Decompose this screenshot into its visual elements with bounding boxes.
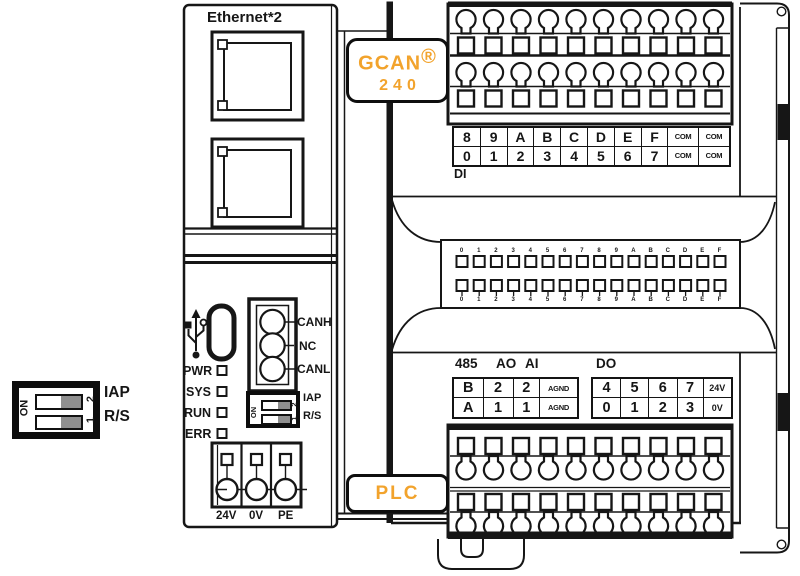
dip-legend-switch-2 xyxy=(35,394,83,410)
legend-rs-label: R/S xyxy=(104,408,130,426)
di-terminal-block xyxy=(448,2,732,125)
err-led xyxy=(218,429,227,438)
dip-switch: ON 2 1 xyxy=(246,391,300,428)
dip-legend-switch-1 xyxy=(35,415,83,431)
gcan-logo: GCAN® xyxy=(358,47,437,74)
di-label-table: 89ABCDEFCOMCOM 01234567COMCOM xyxy=(452,126,731,167)
nc-label: NC xyxy=(299,339,316,353)
din-tab-upper xyxy=(778,104,789,140)
24v-label: 24V xyxy=(216,510,236,522)
usb-c-port xyxy=(209,306,234,359)
sys-led xyxy=(218,387,227,396)
dip-legend-pos2-label: 2 xyxy=(85,396,97,402)
canl-label: CANL xyxy=(297,362,330,376)
iap-label: IAP xyxy=(303,392,321,404)
dip-pos1-label: 1 xyxy=(289,416,298,420)
power-terminal xyxy=(212,443,307,507)
dip-on-label: ON xyxy=(249,406,258,417)
bus-pin-labels-bottom: 0123456789ABCDEF xyxy=(453,297,729,304)
pwr-led xyxy=(218,366,227,375)
din-tab-lower xyxy=(778,393,789,431)
side-panel xyxy=(740,4,789,553)
ai-header: AI xyxy=(525,356,539,371)
err-led-label: ERR xyxy=(185,427,211,441)
dip-legend-on-label: ON xyxy=(18,400,30,417)
run-led xyxy=(218,408,227,417)
canh-label: CANH xyxy=(297,315,332,329)
gcan-model: 240 xyxy=(374,78,421,94)
dip-switch-1 xyxy=(261,414,292,425)
can-terminal xyxy=(249,299,297,391)
ethernet-label: Ethernet*2 xyxy=(207,9,282,26)
gcan-240-wiring-diagram: Ethernet*2 PWR SYS RUN ERR CANH NC CANL … xyxy=(0,0,800,576)
485-header: 485 xyxy=(455,356,478,371)
pwr-led-label: PWR xyxy=(183,364,212,378)
dip-legend-pos1-label: 1 xyxy=(85,416,97,422)
dip-switch-legend: ON 2 1 xyxy=(12,381,100,439)
rs-label: R/S xyxy=(303,410,321,422)
di-section-label: DI xyxy=(454,167,467,181)
sys-led-label: SYS xyxy=(186,385,211,399)
pe-label: PE xyxy=(278,510,293,522)
bus-connector xyxy=(392,200,775,350)
io-terminal-block xyxy=(448,424,732,539)
dip-pos2-label: 2 xyxy=(289,402,298,406)
din-clip xyxy=(438,539,524,569)
gcan-logo-badge: GCAN® 240 xyxy=(346,38,449,103)
do-label-table: 456724V 01230V xyxy=(591,377,733,419)
plc-label: PLC xyxy=(376,483,420,505)
ao-header: AO xyxy=(496,356,516,371)
do-header: DO xyxy=(596,356,616,371)
plc-badge: PLC xyxy=(346,474,449,513)
0v-label: 0V xyxy=(249,510,263,522)
bus-pin-labels-top: 0123456789ABCDEF xyxy=(453,248,729,255)
analog-label-table: B22AGND A11AGND xyxy=(452,377,579,419)
legend-iap-label: IAP xyxy=(104,384,130,402)
dip-switch-2 xyxy=(261,400,292,411)
run-led-label: RUN xyxy=(184,406,211,420)
